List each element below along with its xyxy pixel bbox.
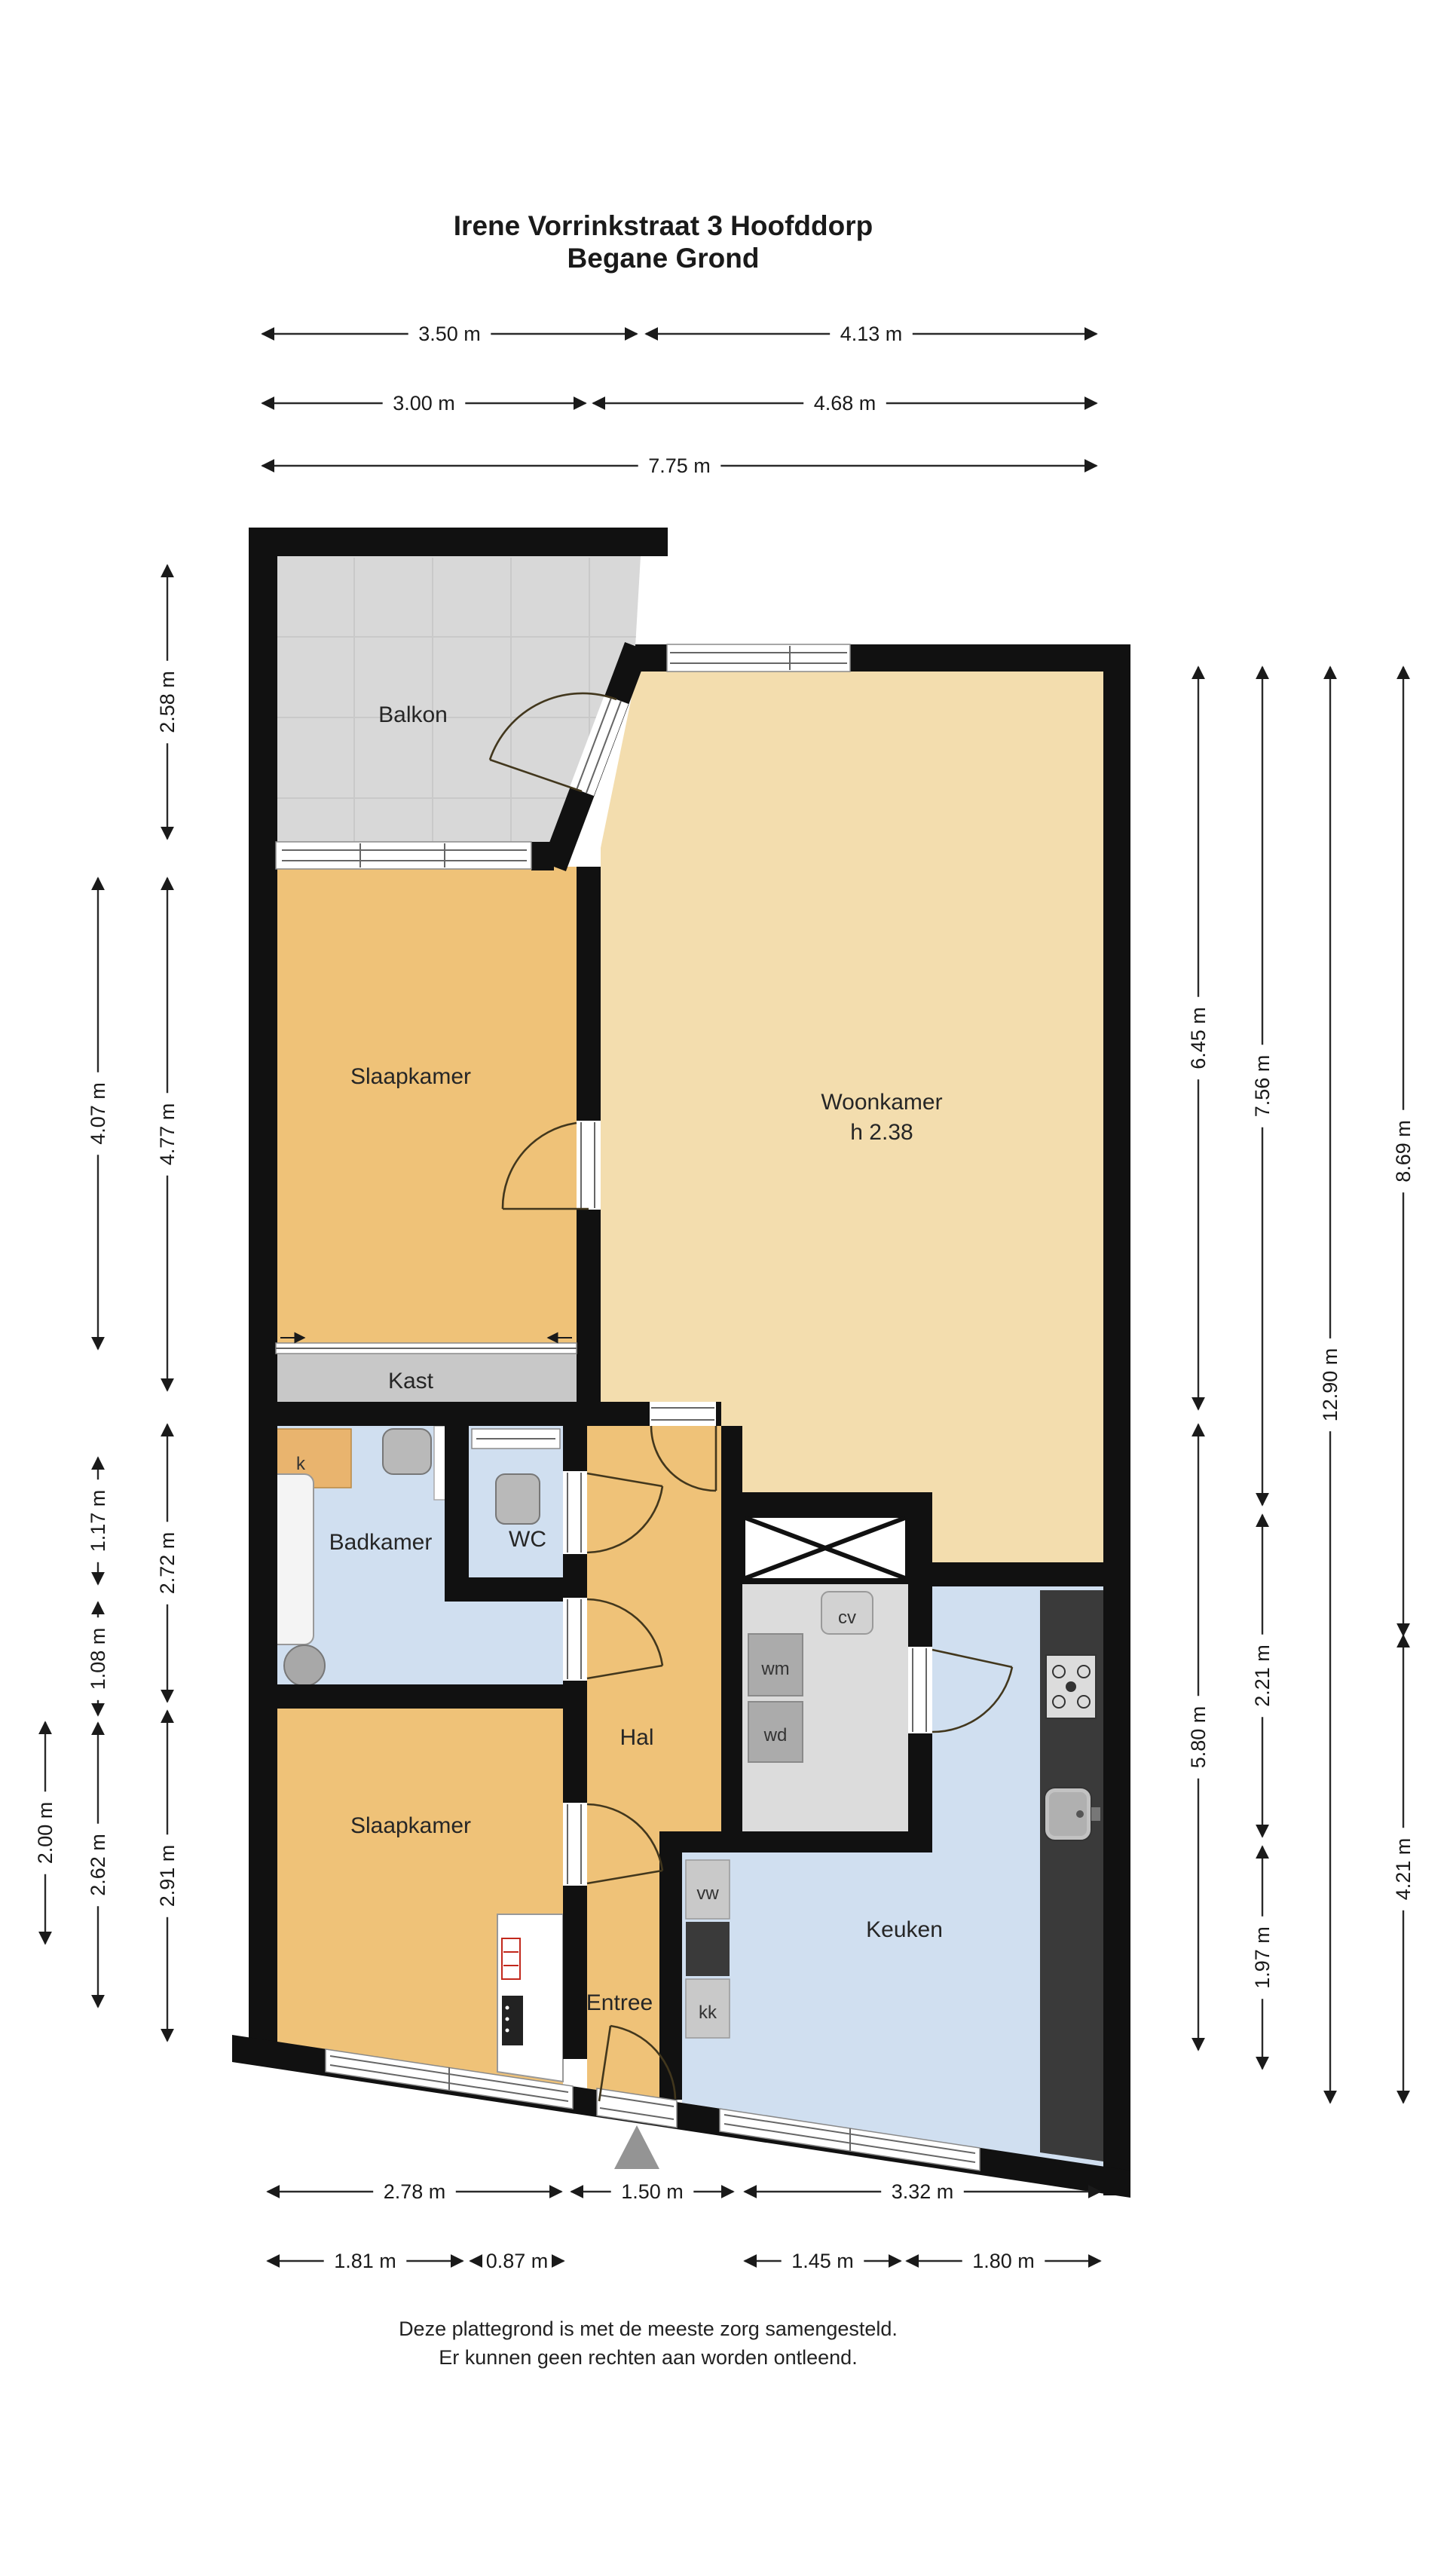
- wall-balkon-top: [249, 528, 668, 556]
- label-balkon: Balkon: [378, 702, 448, 727]
- dimension-label: 2.62 m: [87, 1834, 109, 1896]
- label-kast-klein: k: [296, 1454, 306, 1474]
- label-kast: Kast: [388, 1369, 434, 1394]
- label-woonkamer-hoogte: h 2.38: [850, 1120, 913, 1145]
- label-badkamer: Badkamer: [329, 1530, 433, 1555]
- meter-radiator: [502, 1938, 520, 1979]
- wall-post-balkon: [531, 842, 554, 870]
- wall-techniek-bottom: [682, 1831, 932, 1852]
- dimension-label: 4.68 m: [814, 392, 876, 415]
- meter-panel-dot: [506, 2018, 509, 2021]
- dimension-label: 1.45 m: [791, 2250, 854, 2272]
- dimension-label: 2.91 m: [156, 1845, 179, 1908]
- dimension-label: 3.50 m: [418, 323, 481, 345]
- door-wc: [563, 1471, 587, 1554]
- door-slaapkamer-onder: [563, 1803, 587, 1886]
- dimension-label: 1.08 m: [87, 1628, 109, 1690]
- burner-center: [1066, 1681, 1076, 1692]
- dimension-label: 3.32 m: [892, 2180, 954, 2203]
- wall-right: [1103, 644, 1130, 2195]
- label-entree: Entree: [586, 1990, 653, 2015]
- wall-hal-right: [721, 1426, 742, 1831]
- label-slaapkamer-onder: Slaapkamer: [350, 1813, 471, 1838]
- wall-techniek-top: [721, 1492, 932, 1515]
- dimension-label: 3.00 m: [393, 392, 455, 415]
- label-hal: Hal: [619, 1725, 653, 1750]
- wc-toilet: [496, 1474, 540, 1524]
- dimension-label: 4.13 m: [840, 323, 903, 345]
- dimension-label: 7.75 m: [648, 454, 711, 477]
- label-slaapkamer-boven: Slaapkamer: [350, 1064, 471, 1089]
- dimension-label: 0.87 m: [486, 2250, 549, 2272]
- door-techniek: [908, 1647, 932, 1733]
- entrance-triangle: [614, 2125, 659, 2169]
- footer-disclaimer-1: Deze plattegrond is met de meeste zorg s…: [399, 2317, 898, 2340]
- footer-disclaimer-2: Er kunnen geen rechten aan worden ontlee…: [439, 2346, 857, 2369]
- door-badkamer: [563, 1598, 587, 1681]
- dimension-label: 1.80 m: [972, 2250, 1035, 2272]
- dimension-label: 2.21 m: [1251, 1644, 1274, 1707]
- dimension-label: 1.50 m: [621, 2180, 684, 2203]
- label-woonkamer: Woonkamer: [821, 1090, 942, 1115]
- dimension-label: 6.45 m: [1187, 1007, 1210, 1069]
- dimension-label: 12.90 m: [1319, 1348, 1341, 1422]
- meter-panel-dot: [506, 2006, 509, 2010]
- window-woonkamer-top: [667, 644, 850, 672]
- dimension-label: 2.58 m: [156, 671, 179, 733]
- wall-kast-bottom: [249, 1402, 601, 1426]
- page-subtitle: Begane Grond: [567, 243, 760, 274]
- dimension-label: 4.77 m: [156, 1103, 179, 1166]
- wall-badkamer-bottom: [249, 1684, 587, 1709]
- dimension-label: 7.56 m: [1251, 1055, 1274, 1118]
- meter-panel-dot: [506, 2029, 509, 2033]
- dimension-label: 4.21 m: [1392, 1838, 1415, 1901]
- dimension-label: 2.00 m: [34, 1802, 57, 1865]
- wall-keuken-top: [932, 1562, 1103, 1586]
- window-balkon-slaapkamer: [276, 842, 531, 869]
- dimension-label: 2.72 m: [156, 1532, 179, 1595]
- dimension-label: 1.17 m: [87, 1490, 109, 1553]
- label-kk: kk: [699, 2002, 717, 2023]
- sink-handle: [1091, 1807, 1100, 1821]
- meter-panel: [502, 1996, 523, 2045]
- page-title: Irene Vorrinkstraat 3 Hoofddorp: [454, 210, 873, 241]
- label-vw: vw: [696, 1883, 719, 1904]
- label-wd: wd: [763, 1725, 788, 1745]
- label-keuken: Keuken: [866, 1917, 943, 1942]
- door-woonkamer-hal: [650, 1402, 716, 1426]
- wall-badkamer-wc: [445, 1426, 469, 1577]
- floorplan-drawing: Irene Vorrinkstraat 3 Hoofddorp Begane G…: [0, 0, 1447, 2572]
- room-slaapkamer-boven: [276, 867, 577, 1343]
- dimension-label: 2.78 m: [384, 2180, 446, 2203]
- wall-left: [249, 528, 277, 2050]
- dimension-label: 1.81 m: [334, 2250, 396, 2272]
- label-wm: wm: [760, 1659, 789, 1679]
- door-slaapkamer-boven: [577, 1121, 601, 1210]
- dimension-label: 4.07 m: [87, 1082, 109, 1145]
- label-wc: WC: [509, 1527, 546, 1552]
- floorplan-page: Irene Vorrinkstraat 3 Hoofddorp Begane G…: [0, 0, 1447, 2572]
- dimension-label: 1.97 m: [1251, 1926, 1274, 1989]
- label-cv: cv: [838, 1608, 856, 1628]
- sink-faucet: [1076, 1810, 1084, 1818]
- shower-head: [284, 1645, 325, 1686]
- dimension-label: 8.69 m: [1392, 1120, 1415, 1182]
- kitchen-dark-cabinet: [686, 1922, 730, 1976]
- badkamer-toilet: [383, 1429, 431, 1474]
- dimension-label: 5.80 m: [1187, 1706, 1210, 1769]
